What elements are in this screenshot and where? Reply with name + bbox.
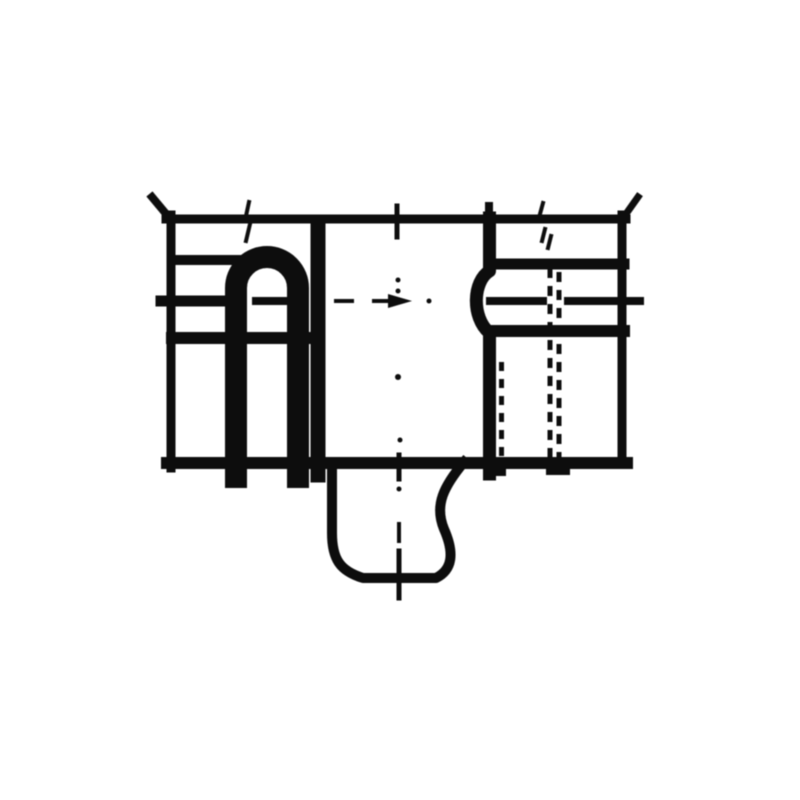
lead-stub-right — [546, 460, 570, 475]
double-tick-right-b — [542, 229, 545, 241]
filament-support-arch — [236, 257, 298, 477]
axis-arrowhead — [388, 294, 412, 308]
axis-dot-5 — [397, 487, 402, 492]
axis-dot-1 — [396, 278, 401, 283]
technical-drawing — [0, 0, 800, 800]
diagram-canvas — [0, 0, 800, 800]
lead-stub-left — [484, 460, 506, 476]
double-tick-left-b — [246, 224, 250, 241]
double-tick-right-a — [540, 203, 543, 214]
double-tick-left-a — [246, 202, 249, 216]
axis-dot-6 — [427, 299, 432, 304]
divider-right-bulged — [476, 218, 489, 474]
axis-dot-3 — [395, 374, 401, 380]
axis-dot-2 — [396, 289, 401, 294]
axis-dot-4 — [398, 438, 403, 443]
double-tick-right-c — [548, 236, 551, 248]
